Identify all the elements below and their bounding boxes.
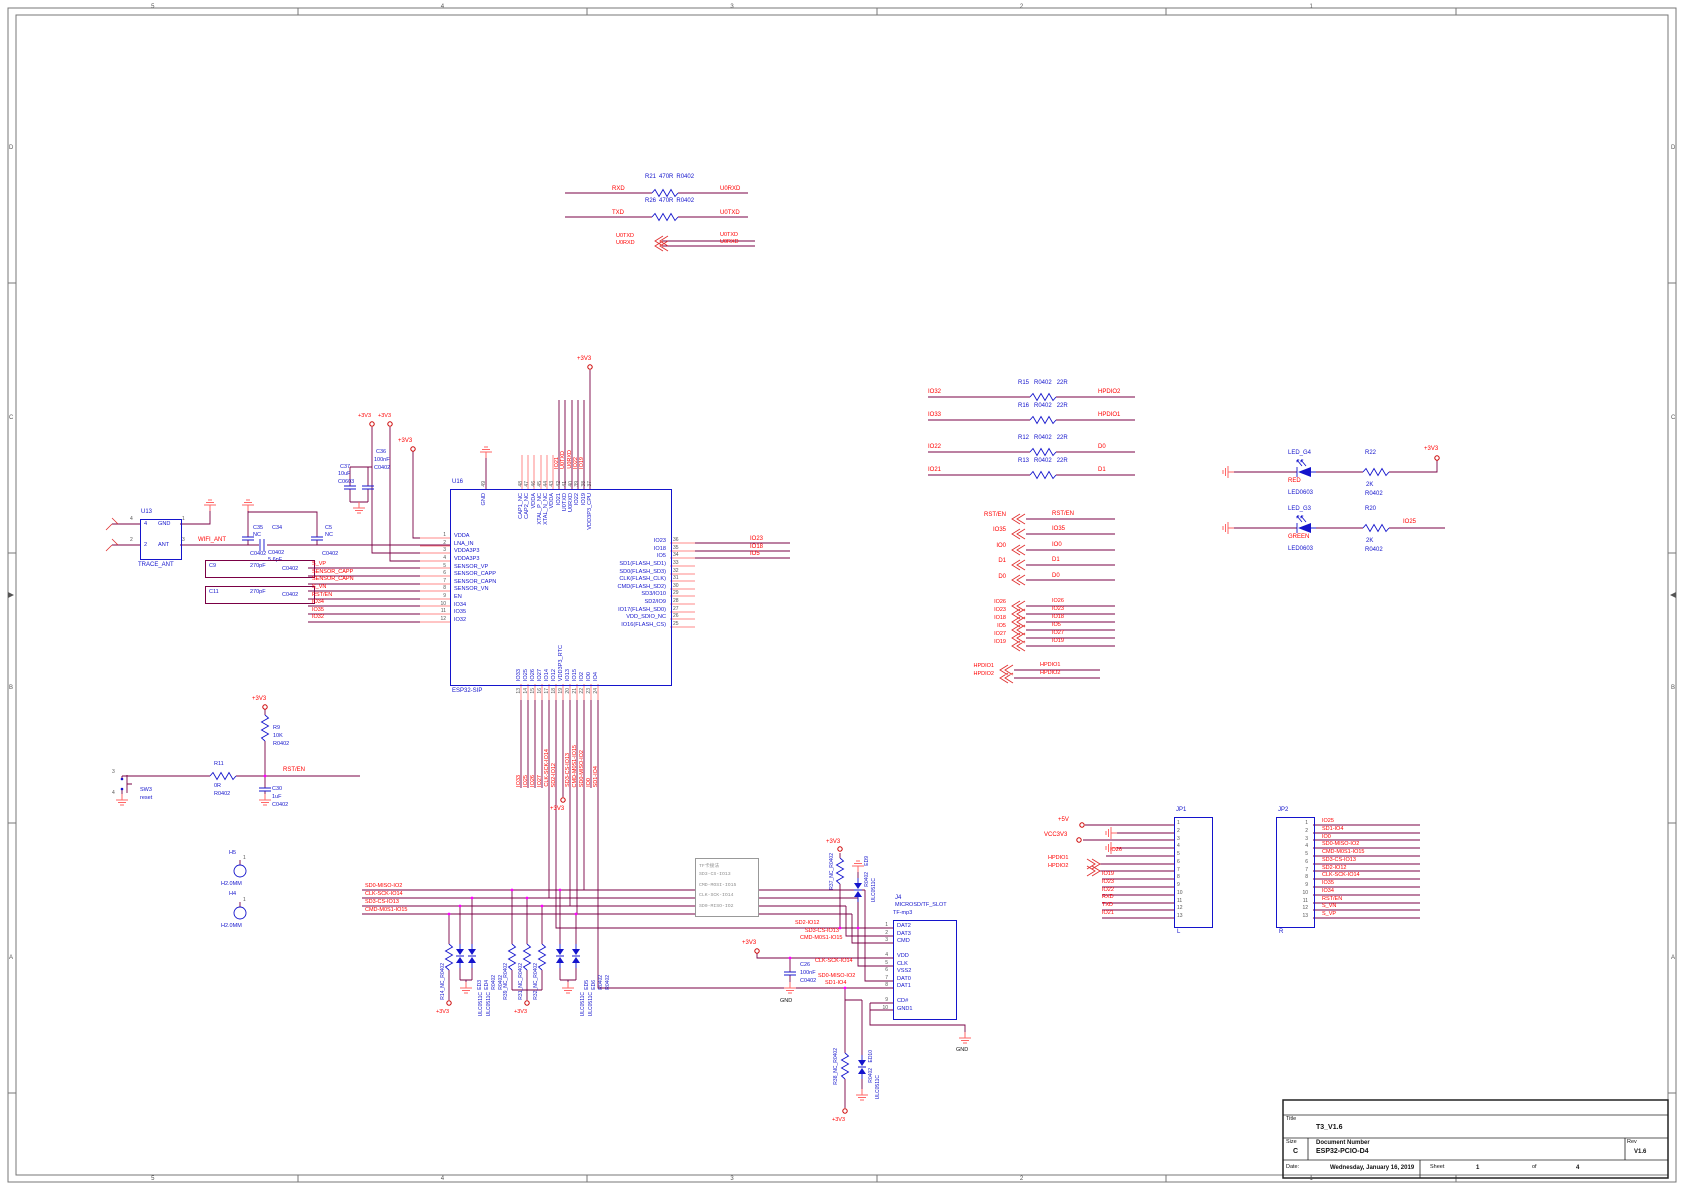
component-type: ULC0511C	[589, 992, 594, 1016]
pin-number: 23	[587, 688, 592, 694]
pin-name: IO4	[594, 672, 600, 681]
net-label: IO35	[1322, 880, 1364, 888]
tf-note-lines: TF卡接法SD3-CS-IO13CMD-MOSI-IO15CLK-SCK-IO1…	[699, 862, 736, 914]
esp32-sensor-nets: S_VPSENSOR_CAPPSENSOR_CAPNS_VNRST/ENIO34…	[312, 561, 354, 622]
net-label: D1	[1098, 467, 1106, 473]
esp32-left-pin-numbers: 123456789101112	[418, 533, 446, 625]
pin-number: 8	[864, 983, 888, 991]
component-footprint: R0402	[869, 1068, 874, 1083]
net-label: IO32	[928, 389, 941, 395]
zone-letter: D	[1671, 13, 1675, 283]
net-label: IO5	[952, 623, 1006, 631]
net-label: IO35	[312, 607, 354, 615]
component-ref: C34	[272, 526, 282, 532]
net-label: IO27	[1052, 630, 1064, 638]
net-label: HPDIO1	[1040, 662, 1060, 670]
net-label: D1	[1052, 557, 1074, 572]
net-label: IO19	[1102, 871, 1114, 879]
component-ref: H5	[229, 851, 236, 857]
net-label: S_VP	[1322, 911, 1364, 919]
net-label: SENSOR_CAPP	[312, 569, 354, 577]
net-label: IO34	[312, 599, 354, 607]
power-label: +3V3	[826, 839, 840, 845]
pin-number: 15	[531, 688, 536, 694]
component-type: ULC0511C	[479, 992, 484, 1016]
pin-number: 4	[418, 556, 446, 564]
rev-label: Rev	[1627, 1140, 1637, 1146]
net-label: IO0	[1052, 542, 1074, 557]
pin-name: IO12	[552, 669, 558, 681]
power-label: +3V3	[436, 1010, 449, 1016]
power-label: +3V3	[252, 696, 266, 702]
rev-value: V1.6	[1634, 1149, 1646, 1155]
component-ref: R14_NC_R0402	[441, 963, 446, 1000]
component-ref: R37_NC_R0402	[830, 853, 835, 890]
esp32-right-pin-numbers: 363534333231302928272625	[673, 538, 679, 630]
component-type: ULC0511C	[487, 992, 492, 1016]
zone-letters-right: DCBA	[1671, 13, 1675, 1093]
net-label: IO19	[580, 457, 586, 469]
led-color-label: RED	[1288, 478, 1301, 484]
component-footprint: C0402	[322, 552, 338, 558]
component-ref: C5	[325, 526, 332, 532]
pin-number: 3	[112, 770, 115, 775]
zone-letter: B	[9, 553, 13, 823]
pin-name: IO0	[587, 672, 593, 681]
component-value: R	[1279, 929, 1283, 935]
net-label: IO27	[538, 775, 544, 787]
net-label: RST/EN	[1322, 896, 1364, 904]
power-label: +3V3	[358, 414, 371, 420]
component-type: ULC0511C	[872, 878, 877, 902]
net-label: S_VP	[312, 561, 354, 569]
stub-group-a-left: RST/ENIO35IO0D1D0	[952, 512, 1006, 589]
docnum-label: Document Number	[1316, 1140, 1370, 1146]
component-ref: ED9	[865, 856, 870, 866]
pin-name: IO25	[524, 669, 530, 681]
zone-number: 4	[298, 1176, 588, 1182]
pin-number: 2	[144, 543, 147, 549]
component-ref: ED3	[478, 980, 483, 990]
pin-number: 39	[575, 481, 580, 487]
component-value: NC	[325, 533, 333, 539]
net-label: CMD-M0S1-IO15	[800, 936, 842, 942]
net-label: CMD-M0S1-IO15	[365, 907, 407, 915]
component-ref: LED_G4	[1288, 450, 1311, 456]
net-label: S_VN	[1322, 903, 1364, 911]
net-label: RXD	[1102, 894, 1114, 902]
net-label: RST/EN	[1052, 511, 1074, 526]
net-label: RST/EN	[312, 592, 354, 600]
component-value: 2K	[1366, 538, 1373, 544]
net-label: SD0-MISO-IO2	[818, 974, 855, 980]
net-label: IO23	[1102, 879, 1114, 887]
pin-number: 3	[864, 938, 888, 946]
component-ref: R31_NC_R0402	[519, 963, 524, 1000]
net-label: SD3-CS-IO13	[365, 899, 407, 907]
net-label: D0	[952, 574, 1006, 589]
microsd-pin-numbers-b: 45678	[864, 953, 888, 991]
net-label: D0	[1052, 573, 1074, 588]
net-label: U0TXD	[616, 234, 634, 240]
pin-number: 10	[864, 1006, 888, 1014]
component-ref: R12 R0402 22R	[1018, 435, 1068, 441]
power-label: +3V3	[398, 438, 412, 444]
net-label: U0RXD	[720, 240, 739, 246]
component-ref: ED4	[485, 980, 490, 990]
esp32-bottom-nets-b: SD3-CS-IO13CMD-M0S1-IO15SD0-MISO-IO2IO0S…	[566, 702, 601, 788]
sheet-label: Sheet	[1430, 1165, 1444, 1171]
component-value: 270pF	[250, 590, 266, 596]
pin-name: ANT	[158, 543, 169, 549]
pin-number: 25	[673, 622, 679, 630]
stub-group-a-right: RST/ENIO35IO0D1D0	[1052, 511, 1074, 588]
component-footprint: C0402	[272, 803, 288, 809]
esp32-bottom-nets-a: IO33IO25IO26IO27CLK-SCK-IO14SD2-IO12	[517, 702, 559, 788]
date-label: Date:	[1286, 1165, 1299, 1171]
power-label: +3V3	[577, 356, 591, 362]
component-footprint: R0402	[865, 872, 870, 887]
pin-number: 46	[532, 481, 537, 487]
component-ref: R16 R0402 22R	[1018, 403, 1068, 409]
power-label: +3V3	[378, 414, 391, 420]
note-line: SD3-CS-IO13	[699, 872, 736, 882]
net-label: WIFI_ANT	[198, 537, 226, 543]
component-ref: JP1	[1176, 807, 1186, 813]
size-value: C	[1293, 1148, 1298, 1155]
net-label: IO25	[1403, 519, 1416, 525]
net-label: HPDIO1	[1048, 856, 1068, 862]
net-label: IO22	[928, 444, 941, 450]
pin-number: 16	[538, 688, 543, 694]
component-ref: C35	[253, 526, 263, 532]
power-label: +3V3	[1424, 446, 1438, 452]
stub-group-b-right: IO26IO23IO18IO5IO27IO19	[1052, 598, 1064, 646]
power-label: +3V3	[550, 806, 564, 812]
pin-name: GND	[158, 522, 170, 528]
net-label: SD2-IO12	[552, 763, 558, 787]
pin-number: 42	[557, 481, 562, 487]
pin-number: 1	[418, 533, 446, 541]
component-footprint: R0402	[492, 975, 497, 990]
zone-numbers-top: 54321	[8, 4, 1456, 10]
zone-letter: A	[9, 823, 13, 1093]
stub-group-b-left: IO26IO23IO18IO5IO27IO19	[952, 599, 1006, 647]
pin-name: IO2	[580, 672, 586, 681]
component-footprint: C0402	[250, 552, 266, 558]
pin-name: IO13	[566, 669, 572, 681]
pin-name: VDD3P3_CPU	[588, 493, 594, 530]
component-type: ULC0511C	[581, 992, 586, 1016]
zone-number: 5	[8, 4, 298, 10]
net-label: RST/EN	[952, 512, 1006, 527]
pin-number: 7	[418, 579, 446, 587]
component-value: 0R	[214, 784, 221, 790]
component-value: 10K	[273, 734, 283, 740]
zone-letter: C	[9, 283, 13, 553]
net-label: IO18	[1052, 614, 1064, 622]
component-footprint: LED0603	[1288, 490, 1313, 496]
gnd-label: GND	[780, 999, 792, 1005]
pin-name: IO32	[454, 618, 496, 626]
component-value: reset	[140, 796, 152, 802]
component-ref: LED_G3	[1288, 506, 1311, 512]
led-wires	[1234, 460, 1445, 528]
net-label: IO25	[1322, 818, 1364, 826]
component-ref: R39_NC_R0402	[504, 963, 509, 1000]
pin-name: IO26	[531, 669, 537, 681]
component-ref: C26	[800, 963, 810, 969]
esp32-left-pin-names: VDDALNA_INVDDA3P3VDDA3P3SENSOR_VPSENSOR_…	[454, 534, 496, 626]
component-ref: R13 R0402 22R	[1018, 458, 1068, 464]
component-ref: ED10	[869, 1050, 874, 1063]
pin-name: IO33	[517, 669, 523, 681]
net-label: CMD-M0S1-IO15	[1322, 849, 1364, 857]
net-label: RXD	[612, 186, 625, 192]
component-footprint: R0402	[1365, 547, 1383, 553]
zone-letter: C	[1671, 283, 1675, 553]
pin-number: 2	[130, 538, 133, 543]
pin-number: 47	[525, 481, 530, 487]
component-footprint: C0402	[800, 979, 816, 985]
microsd-pin-numbers-c: 910	[864, 998, 888, 1013]
net-label: IO5	[750, 551, 763, 559]
net-label: RST/EN	[283, 767, 305, 773]
component-value: H2.0MM	[221, 882, 242, 888]
zone-numbers-bottom: 54321	[8, 1176, 1456, 1182]
noconnect-x-icon	[106, 518, 118, 551]
net-label: D0	[1098, 444, 1106, 450]
net-label: IO19	[952, 639, 1006, 647]
net-label: SD1-IO4	[825, 981, 846, 987]
zone-number: 5	[8, 1176, 298, 1182]
component-ref: U13	[141, 509, 152, 515]
led-color-label: GREEN	[1288, 534, 1309, 540]
pin-number: 37	[588, 481, 593, 487]
net-label: U0RXD	[720, 186, 740, 192]
component-ref: R38_NC_R0402	[834, 1048, 839, 1085]
pin-number: 24	[594, 688, 599, 694]
net-label: IO0	[587, 778, 593, 787]
net-label: IO26	[531, 775, 537, 787]
sheet-title: T3_V1.6	[1316, 1124, 1342, 1131]
size-label: Size	[1286, 1140, 1297, 1146]
component-ref: R21 470R R0402	[645, 174, 694, 180]
net-label: IO21	[1102, 910, 1114, 918]
net-label: SD1-IO4	[1322, 826, 1364, 834]
component-footprint: R0402	[214, 792, 230, 798]
jp2-nets: IO25SD1-IO4IO0SD0-MISO-IO2CMD-M0S1-IO15S…	[1322, 818, 1364, 919]
zone-letter: D	[9, 13, 13, 283]
bus-entry-icon	[655, 236, 668, 251]
component-type: TF-mp3	[893, 911, 912, 917]
pin-number: 43	[550, 481, 555, 487]
component-value: 2K	[1366, 482, 1373, 488]
net-label: IO33	[928, 412, 941, 418]
component-footprint: R0402	[499, 975, 504, 990]
pin-name: DAT1	[897, 984, 911, 992]
pin-number: 3	[418, 548, 446, 556]
power-icons	[263, 365, 1439, 1113]
pin-name: IO14	[545, 669, 551, 681]
net-label: TXD	[1102, 902, 1114, 910]
net-label: CLK-SCK-IO14	[1322, 872, 1364, 880]
note-line: SD0-MISO-IO2	[699, 904, 736, 914]
pin-name: GND	[482, 493, 488, 505]
esp32-bottom-pin-names: IO33IO25IO26IO27IO14IO12VDD3P3_RTCIO13IO…	[517, 600, 601, 682]
pin-name: IO27	[538, 669, 544, 681]
zone-number: 1	[1166, 4, 1456, 10]
net-label: SD0-MISO-IO2	[1322, 841, 1364, 849]
pin-number: 21	[573, 688, 578, 694]
component-value: MICROSD/TF_SLOT	[895, 903, 947, 909]
component-ref: R20	[1365, 506, 1376, 512]
net-label: IO25	[524, 775, 530, 787]
pin-number: 5	[418, 564, 446, 572]
pin-name: IO15	[573, 669, 579, 681]
pin-number: 8	[418, 586, 446, 594]
component-ref: R15 R0402 22R	[1018, 380, 1068, 386]
sd-bus-labels: SD0-MISO-IO2CLK-SCK-IO14SD3-CS-IO13CMD-M…	[365, 883, 407, 915]
net-label: IO26	[1052, 598, 1064, 606]
component-ref: R32_NC_R0402	[534, 963, 539, 1000]
component-ref: R9	[273, 726, 280, 732]
microsd-pin-numbers-a: 123	[864, 923, 888, 946]
component-ref: C30	[272, 787, 282, 793]
pin-number: 19	[559, 688, 564, 694]
net-label: U0RXD	[616, 241, 635, 247]
pin-number: 4	[144, 522, 147, 528]
component-footprint: C0603	[338, 480, 354, 486]
capacitor-icons	[242, 486, 374, 551]
component-value: L	[1177, 929, 1180, 935]
component-ref: JP2	[1278, 807, 1288, 813]
component-footprint: C0402	[374, 466, 390, 472]
net-label: U0TXD	[720, 210, 740, 216]
net-label: IO23	[952, 607, 1006, 615]
pin-number: 49	[482, 481, 487, 487]
component-ref: C11	[209, 590, 219, 596]
sheet-total: 4	[1576, 1165, 1579, 1171]
pin-number: 13	[517, 688, 522, 694]
component-ref: H4	[229, 892, 236, 898]
net-label: IO26	[1110, 848, 1122, 854]
net-label: CLK-SCK-IO14	[365, 891, 407, 899]
jp2-pin-numbers: 12345678910111213	[1284, 821, 1308, 922]
pin-number: 20	[566, 688, 571, 694]
pin-name: GND1	[897, 1007, 913, 1015]
net-label: TXD	[612, 210, 624, 216]
net-label: HPDIO2	[1098, 389, 1120, 395]
net-label: IO21	[928, 467, 941, 473]
mount-hole-icon	[234, 907, 246, 919]
component-ref: ED5	[585, 980, 590, 990]
pin-number: 4	[130, 517, 133, 522]
component-ref: C37	[340, 465, 350, 471]
pin-number: 1	[182, 517, 185, 522]
pin-name: CMD	[897, 939, 911, 947]
zone-number: 2	[877, 1176, 1167, 1182]
net-label: IO18	[750, 544, 763, 552]
component-ref: J4	[895, 895, 901, 901]
microsd-pin-names-a: DAT2DAT3CMD	[897, 924, 911, 947]
net-label: HPDIO2	[1040, 670, 1060, 678]
zone-number: 3	[587, 1176, 877, 1182]
net-label: IO5	[1052, 622, 1064, 630]
net-label: SD3-CS-IO13	[566, 753, 572, 787]
esp32-gnd-pin-number: 49	[482, 462, 489, 488]
net-label: IO27	[952, 631, 1006, 639]
component-ref: R22	[1365, 450, 1376, 456]
zone-letter: A	[1671, 823, 1675, 1093]
component-footprint: LED0603	[1288, 546, 1313, 552]
jp1-pin-numbers: 12345678910111213	[1177, 821, 1183, 922]
component-value: NC	[253, 533, 261, 539]
net-label: U0TXD	[561, 451, 567, 469]
title-label: Title	[1286, 1117, 1296, 1123]
header-wires	[1083, 825, 1420, 918]
net-label: U0TXD	[720, 233, 738, 239]
microsd-pin-names-c: CD#GND1	[897, 999, 913, 1014]
net-label: CMD-M0S1-IO15	[573, 745, 579, 787]
esp32-top-pin-names: CAP1_NCCAP2_NCVDDAXTAL_P_NCXTAL_N_NCVDDA…	[519, 492, 594, 582]
pin-number: 3	[182, 538, 185, 543]
pin-number: 14	[524, 688, 529, 694]
component-value: ESP32-SIP	[452, 688, 482, 694]
power-label: +5V	[1058, 817, 1069, 823]
pin-number: 17	[545, 688, 550, 694]
esp32-top-nets: IO21U0TXDU0RXDIO22IO19	[555, 415, 586, 470]
component-value: H2.0MM	[221, 924, 242, 930]
component-ref: ED6	[592, 980, 597, 990]
net-label: IO23	[1052, 606, 1064, 614]
pin-number: 22	[580, 688, 585, 694]
net-label: IO19	[1052, 638, 1064, 646]
net-label: HPDIO2	[940, 671, 994, 679]
pin-number: 38	[582, 481, 587, 487]
pin-number: 13	[1177, 914, 1183, 922]
zone-letters-left: DCBA	[9, 13, 13, 1093]
component-ref: SW3	[140, 788, 152, 794]
net-label: SD3-CS-IO13	[1322, 857, 1364, 865]
component-value: 100nF	[374, 458, 390, 464]
schematic-sheet: 54321 54321 DCBA DCBA RXD U0RXD R21 470R…	[0, 0, 1684, 1190]
net-label: HPDIO1	[1098, 412, 1120, 418]
power-label: +3V3	[514, 1010, 527, 1016]
pin-number: 6	[418, 571, 446, 579]
note-line: CLK-SCK-IO14	[699, 893, 736, 903]
net-label: IO32	[312, 614, 354, 622]
net-label: IO0	[1322, 834, 1364, 842]
esp32-right-nets: IO23IO18IO5	[750, 536, 763, 559]
net-label: CLK-SCK-IO14	[815, 959, 853, 965]
bus-entry-icons	[1087, 859, 1100, 876]
net-label: SD1-IO4	[594, 766, 600, 787]
component-value: 10uF	[338, 472, 351, 478]
net-label: IO22	[1102, 887, 1114, 895]
note-line: CMD-MOSI-IO15	[699, 883, 736, 893]
component-footprint: C0402	[282, 567, 298, 573]
pin-number: 1	[243, 856, 246, 861]
stub-group-c-left: HPDIO1HPDIO2	[940, 663, 994, 679]
net-label: HPDIO2	[1048, 864, 1068, 870]
date-value: Wednesday, January 16, 2019	[1330, 1165, 1414, 1171]
zone-number: 4	[298, 4, 588, 10]
pin-number: 4	[112, 791, 115, 796]
power-label: +3V3	[832, 1118, 845, 1124]
zone-number: 2	[877, 4, 1167, 10]
pin-number: 13	[1284, 914, 1308, 922]
